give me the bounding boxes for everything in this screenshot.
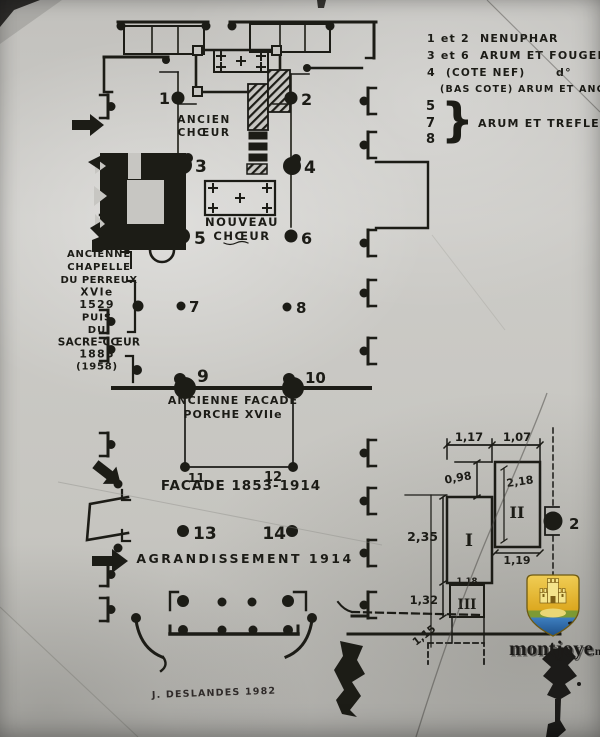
pillar-number: 9 (197, 367, 209, 387)
pillar-number: 14 (262, 524, 286, 544)
pillar-dot (288, 462, 298, 472)
pillar-number: 1 (159, 89, 170, 108)
buttress-icon (360, 230, 377, 256)
chapelle-text-block: ANCIENNE CHAPELLE DU PERREUX XVIe 1529 P… (58, 249, 144, 382)
entrance-arc (136, 620, 162, 657)
dimension-label: 1,15 (410, 623, 438, 648)
buttress-icon (360, 592, 377, 618)
dimension-label: 1,17 (455, 430, 483, 444)
porche-label: ANCIENNE FACADE (168, 394, 298, 407)
legend-label: (COTE NEF) (446, 67, 525, 79)
facade-label: FACADE 1853-1914 (161, 478, 321, 494)
dimension-label: 2,35 (407, 529, 438, 544)
pillar-number: 6 (301, 229, 312, 248)
pillar-number: 2 (301, 90, 312, 109)
base-numeral: I (465, 531, 473, 551)
legend-label: ARUM ET TREFLE (478, 117, 600, 130)
base-numeral: II (510, 503, 525, 522)
pillar-number: 8 (296, 299, 306, 317)
buttress-icon (100, 95, 116, 118)
round-chapel-arc (150, 250, 174, 262)
chapelle-line: DU (88, 325, 106, 336)
pillar-number: 2 (569, 515, 579, 533)
buttress-icon (360, 488, 377, 514)
legend-nums: 3 et 6 (427, 49, 470, 62)
buttress-icon (360, 88, 377, 114)
pillar-dot (544, 512, 563, 531)
altar-cross-icon (209, 204, 217, 212)
dimension-label: 0,98 (444, 469, 473, 487)
chapelle-line: (1958) (76, 362, 118, 373)
legend-nums: 8 (426, 132, 436, 147)
agrandissement-label: AGRANDISSEMENT 1914 (136, 551, 353, 566)
chapelle-line: 1885 (79, 348, 114, 361)
buttress-icon (360, 338, 377, 364)
pillar-dot (285, 92, 298, 105)
pillar-number: 10 (305, 369, 326, 387)
pillar-dot (283, 303, 292, 312)
chapelle-line: DU PERREUX (60, 275, 137, 286)
nouveau-choeur-label: NOUVEAU (205, 215, 279, 229)
pillar-dot (172, 92, 185, 105)
site-tld: .net (592, 646, 600, 658)
arrow-icon (92, 549, 128, 573)
buttress-icon (360, 440, 377, 466)
altar-cross-icon (209, 184, 217, 192)
altar-cross-icon (263, 204, 271, 212)
chapelle-line: ANCIENNE (67, 249, 131, 260)
dimension-label: 1,18 (457, 577, 478, 587)
pillar-number: 4 (304, 158, 316, 178)
tower-chapelle (88, 153, 186, 262)
dimension-label: 2,18 (506, 473, 535, 490)
altar-cross-icon (217, 63, 225, 71)
legend-label: NENUPHAR (480, 32, 559, 45)
watermark: 2 2 montjoye montjoye .net (509, 575, 600, 662)
altar-cross-icon (237, 57, 245, 65)
altar-cross-icon (217, 52, 225, 60)
pillar-dot (174, 228, 190, 244)
signature: J. DESLANDES 1982 (151, 686, 277, 701)
buttress-icon (100, 598, 116, 621)
plan-drawing: 1 2 3 4 5 6 7 8 9 10 11 12 13 14 ANCIEN … (0, 0, 600, 737)
altar-cross-icon (257, 63, 265, 71)
photographed-church-plan: 1 2 3 4 5 6 7 8 9 10 11 12 13 14 ANCIEN … (0, 0, 600, 737)
pillar-number: 5 (194, 229, 206, 249)
chapelle-line: PUIS (82, 313, 112, 324)
legend-nums: 5 (426, 99, 436, 114)
sacristy-outline (376, 162, 428, 228)
chapelle-line: XVIe (80, 287, 113, 299)
ink-blot (334, 641, 365, 717)
nouveau-choeur-label: CHŒUR (213, 229, 270, 243)
buttress-icon (360, 280, 377, 306)
hatched-areas (247, 70, 290, 174)
altar-cross-icon (263, 184, 271, 192)
chapelle-line: CHAPELLE (67, 262, 131, 273)
shield-logo: 2 2 (527, 575, 579, 637)
pillar-number: 13 (193, 524, 217, 544)
buttress-icon (100, 433, 116, 456)
arrow-icon (89, 455, 128, 492)
site-name: montjoye (509, 636, 593, 660)
legend-label: ARUM ET FOUGERE (480, 49, 600, 62)
ancien-choeur-label: ANCIEN (177, 114, 231, 126)
dimension-label: 1,19 (503, 554, 530, 567)
altar-cross-icon (257, 52, 265, 60)
pillar-dot (177, 525, 189, 537)
pillar-dot (177, 302, 186, 311)
legend-nums: 4 (427, 66, 436, 79)
ink-blots (334, 641, 365, 717)
pillar-number: 3 (195, 157, 207, 177)
ink-layer: 1 2 3 4 5 6 7 8 9 10 11 12 13 14 ANCIEN … (58, 22, 600, 718)
buttress-icon (360, 540, 377, 566)
chapelle-line: 1529 (79, 298, 114, 311)
dimension-label: 1,32 (410, 593, 438, 607)
legend: 1 et 2 NENUPHAR 3 et 6 ARUM ET FOUGERE 4… (426, 32, 600, 147)
legend-nums: 7 (426, 116, 436, 131)
buttress-icon (360, 132, 377, 158)
west-colonnade (131, 592, 317, 671)
legend-dito: d° (556, 66, 572, 79)
ancien-choeur-label: CHŒUR (178, 127, 231, 139)
altar-cross-icon (236, 194, 244, 202)
pillar-dot (285, 230, 298, 243)
legend-nums: 1 et 2 (427, 32, 470, 45)
pillar-number: 7 (189, 298, 199, 316)
porche-label: PORCHE XVIIe (183, 408, 282, 421)
brace-icon: } (441, 93, 475, 147)
